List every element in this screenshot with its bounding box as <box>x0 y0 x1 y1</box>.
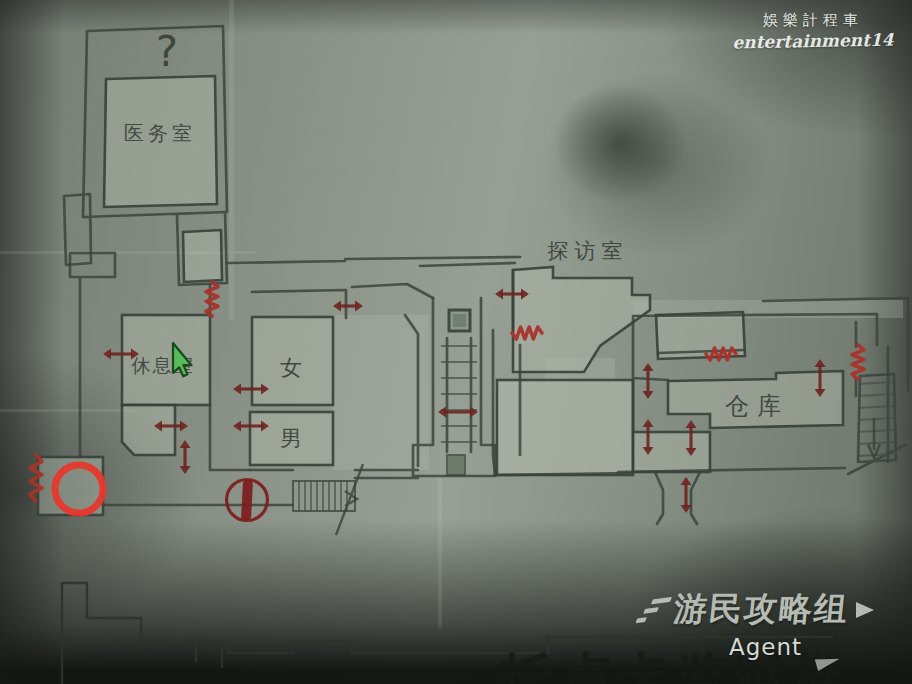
lower-room <box>633 432 710 472</box>
watermark-top: 娛樂計程車 entertainment14 <box>724 11 902 51</box>
warehouse-label: 仓库 <box>725 392 789 420</box>
circled-bar-marker-bar <box>241 480 253 520</box>
connector-room <box>183 230 222 282</box>
watermark-top-en: entertainment14 <box>724 29 902 52</box>
watermark-top-cn: 娛樂計程車 <box>724 11 902 30</box>
logo-subtitle: Agent <box>729 634 802 660</box>
infirmary-label: 医务室 <box>124 121 196 145</box>
blocked-door-zigzag-icon <box>852 345 864 379</box>
rest-subroom <box>122 405 175 455</box>
big-hall-room <box>497 380 633 475</box>
logo-speed-lines-icon <box>644 597 672 622</box>
visiting-room-label: 探访室 <box>548 239 629 263</box>
unknown-mark-label: ? <box>156 27 178 76</box>
gamersky-logo: 游民攻略组 <box>649 587 874 632</box>
prison-map-drawing: 医务室 ? 休息室 女 男 探访室 仓库 <box>0 0 912 684</box>
logo-text: 游民攻略组 <box>672 587 852 632</box>
logo-arrow-icon <box>856 602 874 618</box>
toilet-male-label: 男 <box>280 426 302 451</box>
toilet-female-label: 女 <box>280 355 302 380</box>
visiting-room <box>513 267 650 372</box>
screenshot-root: 医务室 ? 休息室 女 男 探访室 仓库 托卢卡监狱楼 娛樂計程車 entert… <box>0 0 912 684</box>
stairs-down-arrow <box>868 418 880 458</box>
